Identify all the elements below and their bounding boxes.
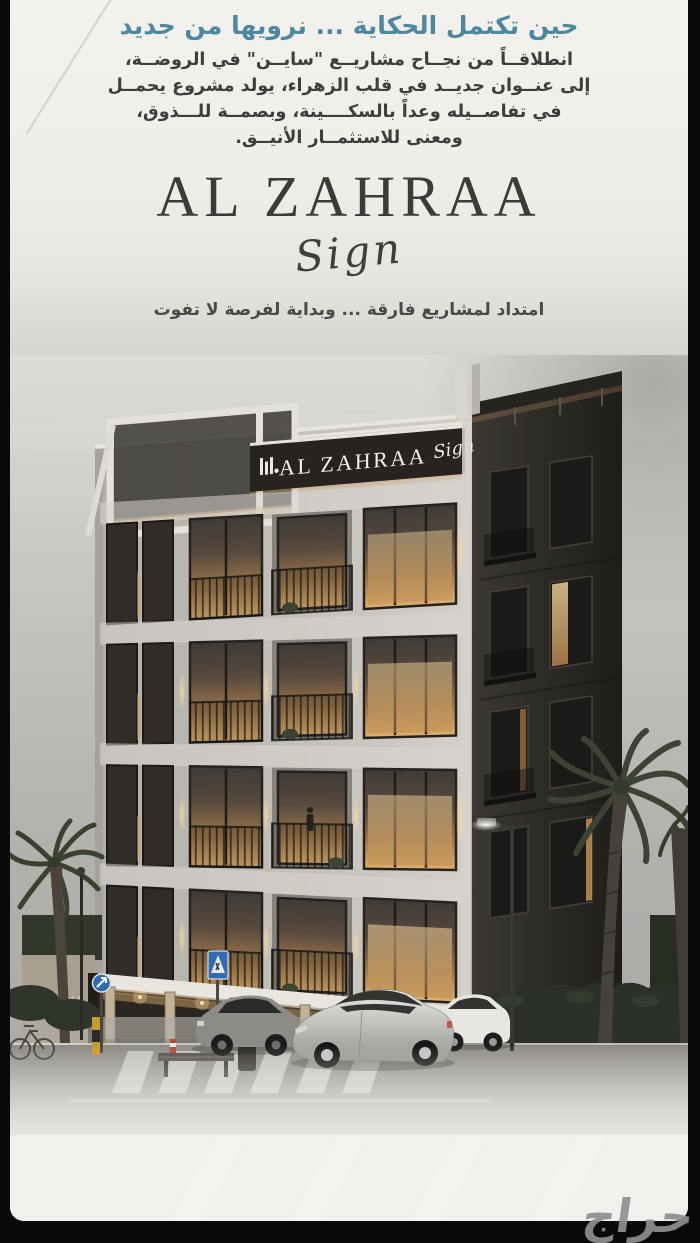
brand-script-text: Sign [293,227,404,278]
brand-name: AL ZAHRAA [10,168,688,226]
paragraph-line: ومعنى للاستثمــار الأنيــق. [10,125,688,151]
corner-pier [462,411,471,1017]
paragraph-line: في تفاصــيله وعداً بالسكــــينة، وبصمــة… [10,99,688,125]
poster-header: حين تكتمل الحكاية ... نرويها من جديد انط… [10,0,688,320]
poster: حين تكتمل الحكاية ... نرويها من جديد انط… [10,0,688,1221]
screenshot-root: { "poster": { "headline": "حين تكتمل الح… [0,0,700,1241]
paragraph-line: إلى عنــوان جديــد في قلب الزهراء، يولد … [10,73,688,99]
intro-paragraph: انطلاقــاً من نجــاح مشاريــع "سايــن" ف… [10,47,688,151]
haraj-watermark-logo: حراج [580,1193,697,1239]
building-illustration: AL ZAHRAA Sign [10,355,688,1221]
building-side-face [472,371,622,1021]
balcony-person [307,807,314,831]
tagline: امتداد لمشاريع فارقة ... وبداية لفرصة لا… [10,300,688,320]
headline: حين تكتمل الحكاية ... نرويها من جديد [10,11,688,40]
building-front-face: AL ZAHRAA Sign [88,363,480,1017]
paragraph-line: انطلاقــاً من نجــاح مشاريــع "سايــن" ف… [10,47,688,73]
brand-script-logo: Sign [10,232,688,274]
